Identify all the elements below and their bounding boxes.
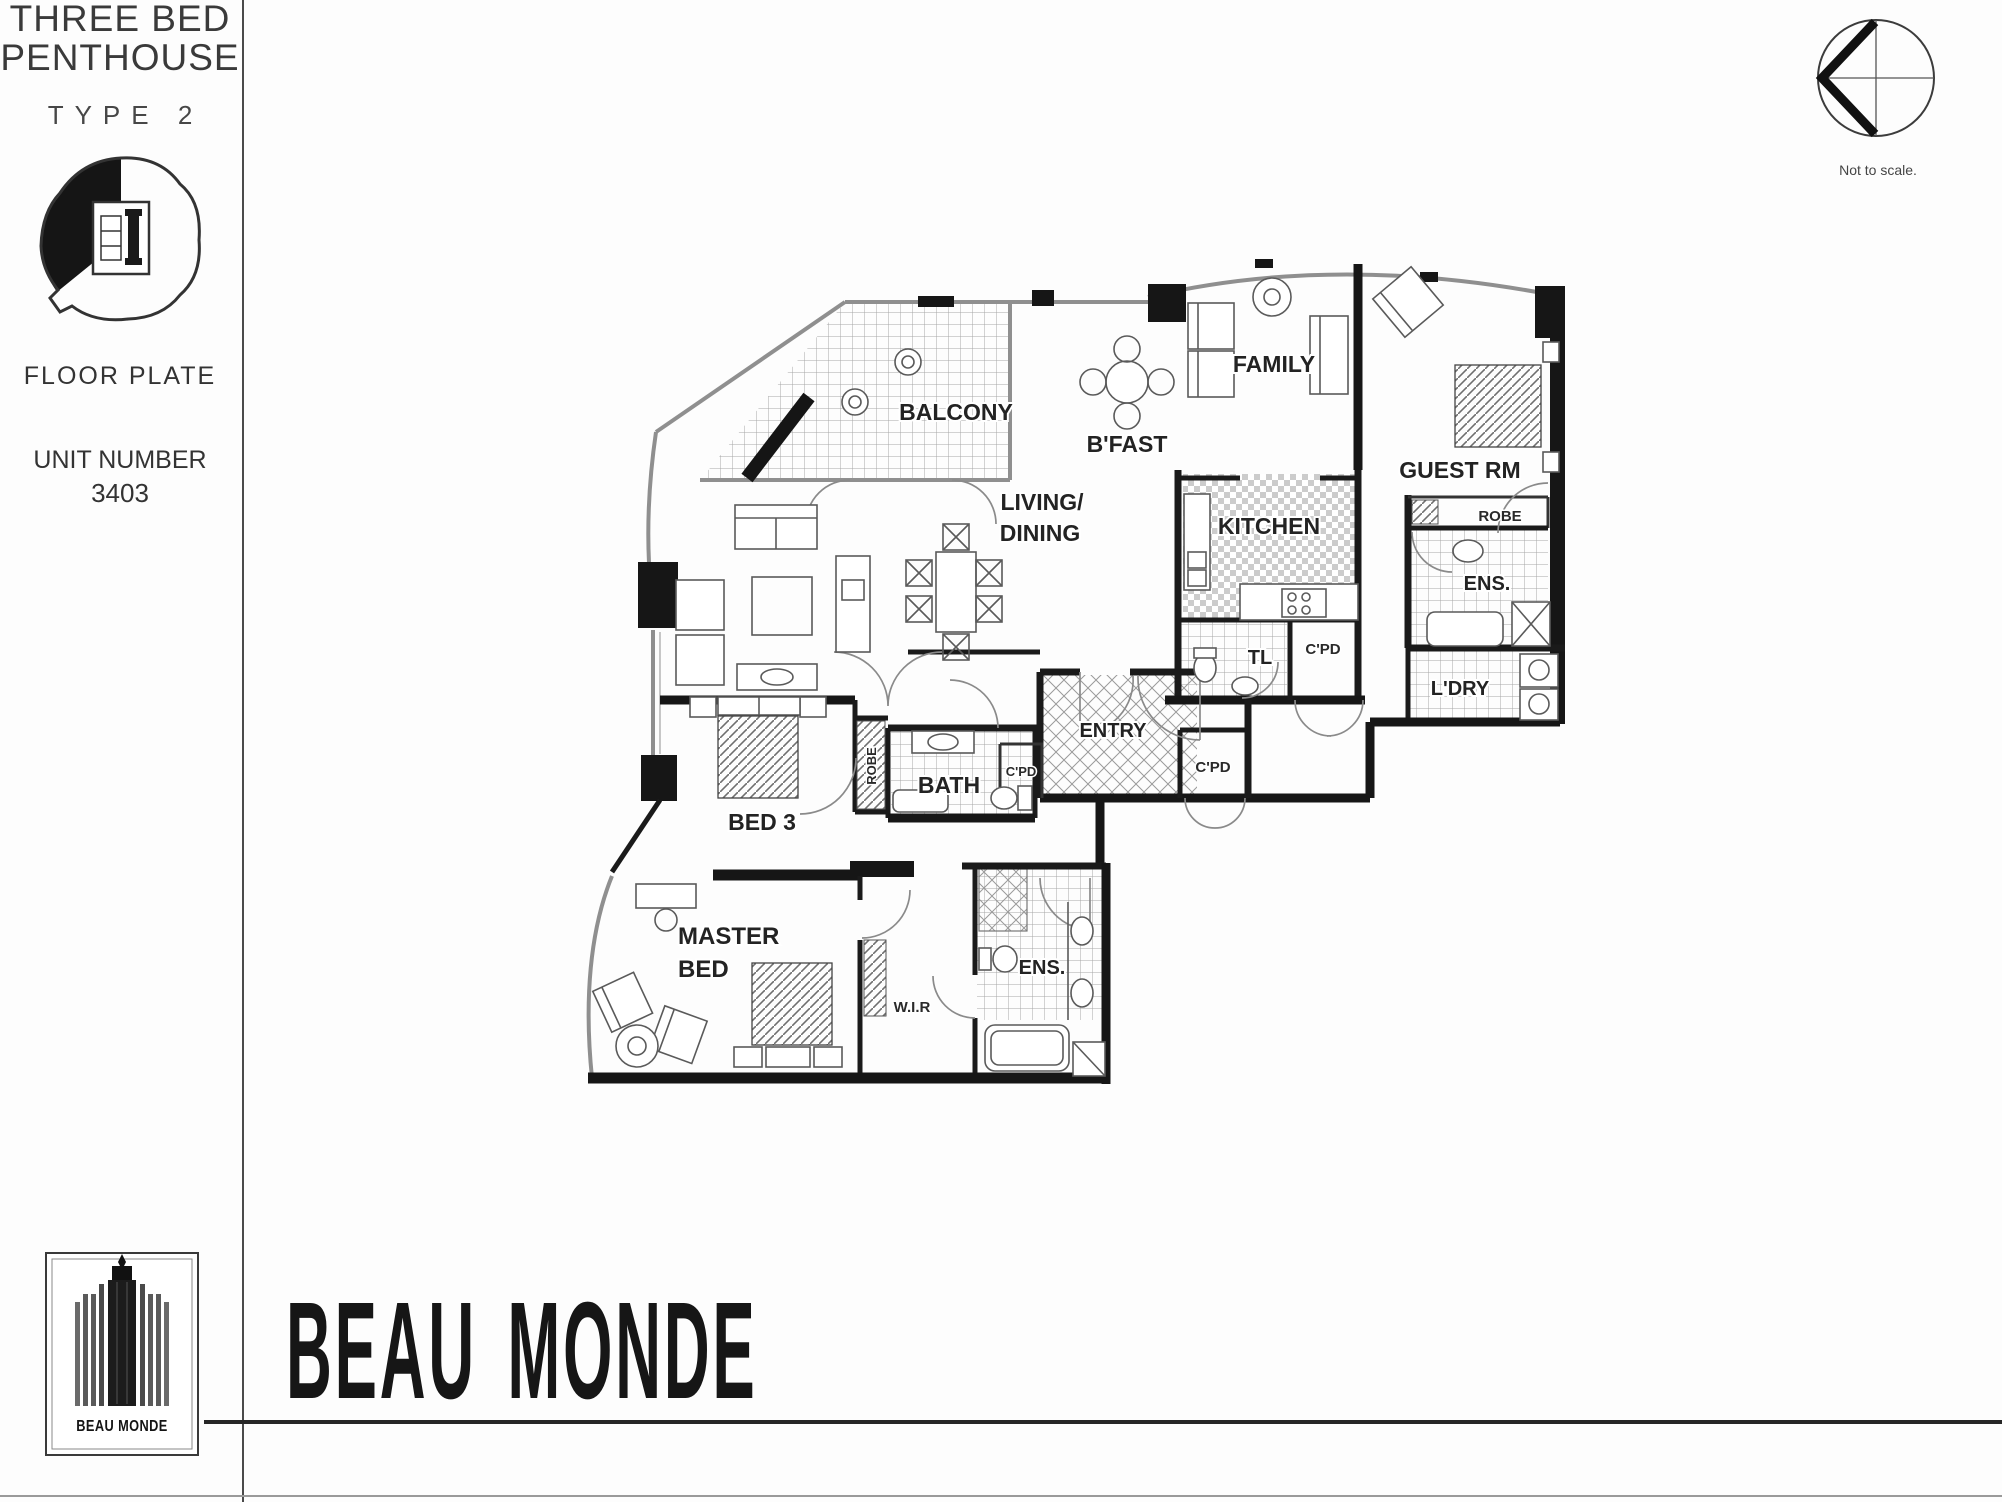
plan-title-line1: THREE BED [0, 0, 240, 39]
wir-rack [864, 940, 886, 1016]
brand-wordmark: BEAU MONDE [286, 1282, 758, 1420]
floor-plan: BALCONY LIVING/ DINING B'FAST FAMILY KIT… [588, 259, 1565, 1084]
bfast-set [1080, 336, 1174, 429]
plan-title: THREE BED PENTHOUSE [0, 0, 240, 78]
room-label-ens-master: ENS. [1019, 957, 1066, 979]
room-label-master1: MASTER [678, 923, 779, 950]
dining-set [906, 524, 1002, 660]
plan-title-line2: PENTHOUSE [0, 39, 240, 78]
room-label-living1: LIVING/ [1000, 489, 1084, 515]
guest-furniture [1373, 267, 1559, 472]
not-to-scale-note: Not to scale. [1808, 162, 1948, 178]
room-label-cpd-kitchen: C'PD [1305, 641, 1340, 658]
guest-bed [1455, 365, 1541, 447]
room-label-bfast: B'FAST [1087, 431, 1168, 457]
living-furniture [676, 505, 870, 690]
family-furniture [1188, 278, 1348, 397]
room-label-tl: TL [1248, 647, 1272, 669]
room-label-ens-guest: ENS. [1464, 573, 1511, 595]
footer-rule [204, 1420, 2002, 1424]
room-label-entry: ENTRY [1079, 720, 1147, 742]
sidebar-divider [242, 0, 244, 1502]
north-arrow-icon [1818, 20, 1934, 136]
room-label-robe-bed3: ROBE [864, 747, 879, 785]
room-label-family: FAMILY [1233, 351, 1315, 377]
logo-wordmark-small: BEAU MONDE [61, 1418, 183, 1436]
bed3-furniture [690, 697, 826, 798]
unit-number-value: 3403 [0, 478, 240, 509]
room-label-master2: BED [678, 956, 729, 983]
page-bottom-border [0, 1495, 2002, 1497]
floor-plate-label: FLOOR PLATE [0, 362, 240, 391]
room-label-bed3: BED 3 [728, 809, 796, 835]
room-label-kitchen: KITCHEN [1218, 513, 1320, 539]
room-label-robe-guest: ROBE [1478, 508, 1521, 525]
room-label-cpd-hall: C'PD [1006, 764, 1037, 779]
plan-subtitle: TYPE 2 [0, 100, 240, 131]
shower [979, 869, 1027, 931]
unit-number-label: UNIT NUMBER [0, 446, 240, 475]
room-label-bath: BATH [918, 772, 980, 798]
floor-plate-icon [41, 158, 199, 320]
laundry-fittings [1520, 654, 1558, 720]
room-label-wir: W.I.R [894, 999, 931, 1016]
room-label-guest: GUEST RM [1399, 457, 1520, 483]
room-label-cpd-entry: C'PD [1195, 759, 1230, 776]
room-label-living2: DINING [1000, 520, 1081, 546]
room-label-ldry: L'DRY [1431, 678, 1490, 700]
room-label-balcony: BALCONY [899, 399, 1013, 425]
robe-guest-rack [1412, 500, 1438, 524]
floorplan-page: BALCONY LIVING/ DINING B'FAST FAMILY KIT… [0, 0, 2002, 1502]
